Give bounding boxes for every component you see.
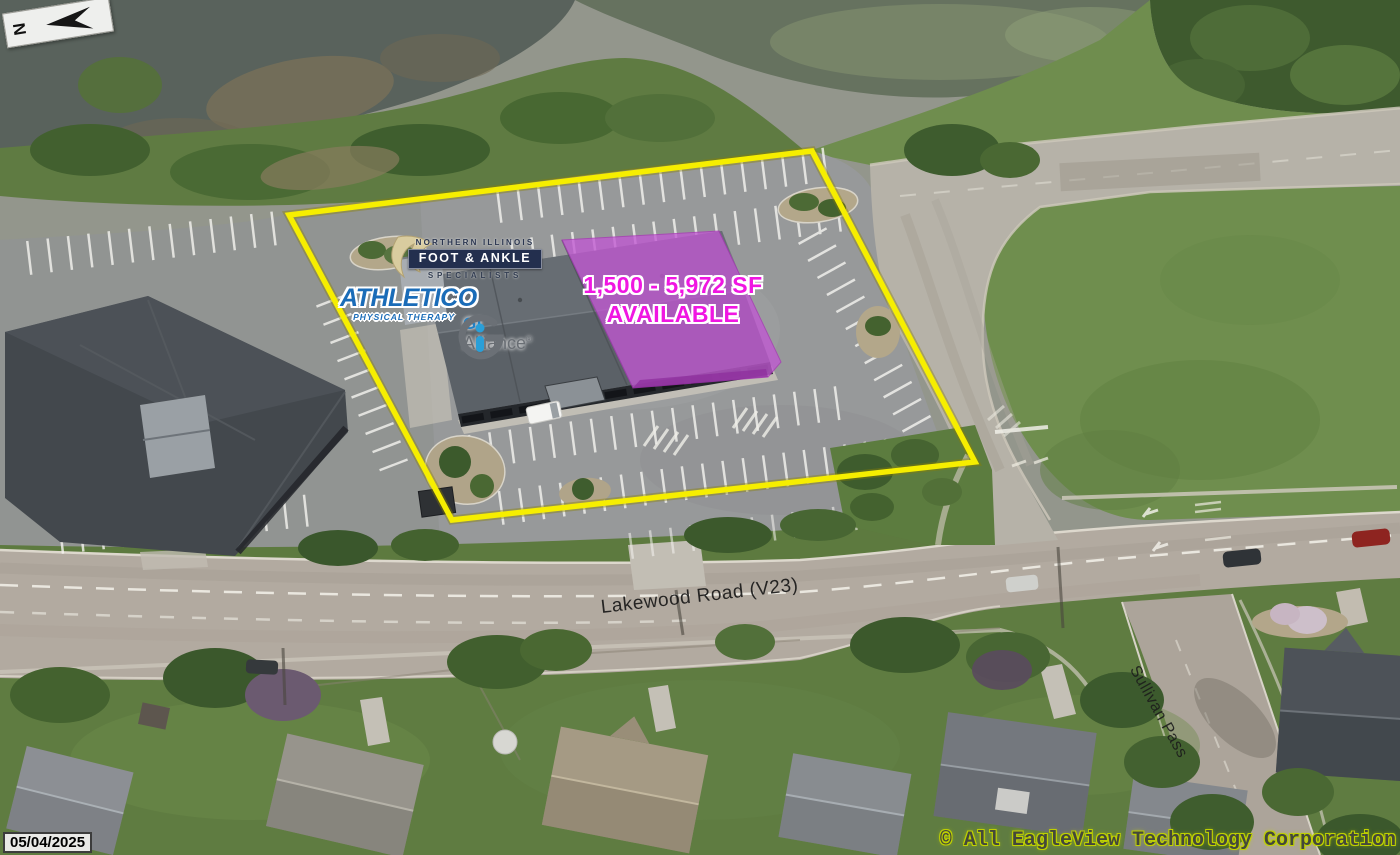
foot-ankle-top-text: NORTHERN ILLINOIS <box>408 239 542 247</box>
trampoline <box>493 730 517 754</box>
shrub <box>850 493 894 521</box>
date-stamp: 05/04/2025 <box>3 832 92 853</box>
flowering-tree <box>1270 603 1300 625</box>
copyright-notice: © All EagleView Technology Corporation <box>940 829 1396 852</box>
gi-alliance-mark-icon <box>458 315 504 361</box>
pole-shadow <box>283 648 285 705</box>
tree <box>1262 768 1334 816</box>
tree <box>439 446 471 478</box>
tree <box>470 474 494 498</box>
tree-cluster <box>500 92 620 144</box>
shrub <box>865 316 891 336</box>
tree <box>10 667 110 723</box>
tree <box>780 509 856 541</box>
availability-callout: 1,500 - 5,972 SF AVAILABLE <box>568 271 778 329</box>
dormer <box>995 788 1030 814</box>
tree <box>298 530 378 566</box>
north-arrow-icon <box>32 3 98 40</box>
availability-size-range: 1,500 - 5,972 SF <box>568 271 778 300</box>
tree-cluster <box>30 124 150 176</box>
tree <box>715 624 775 660</box>
tree-cluster <box>78 57 162 113</box>
house <box>933 712 1096 837</box>
athletico-logo: ATHLETICO PHYSICAL THERAPY <box>340 286 468 322</box>
marsh-patch <box>380 34 500 82</box>
foot-ankle-logo: NORTHERN ILLINOIS FOOT & ANKLE SPECIALIS… <box>408 239 542 280</box>
shrub <box>358 241 386 259</box>
gi-alliance-logo: GI Alliance® <box>458 315 532 352</box>
north-label: N <box>8 21 30 36</box>
car <box>246 659 279 675</box>
tree <box>391 529 459 561</box>
registered-mark: ® <box>526 335 532 344</box>
availability-status: AVAILABLE <box>568 300 778 329</box>
grass-patch <box>1160 235 1340 325</box>
tree-cluster <box>605 94 715 142</box>
east-field <box>983 186 1400 520</box>
aerial-map: N NORTHERN ILLINOIS FOOT & ANKLE SPECIAL… <box>0 0 1400 855</box>
tree <box>684 517 772 553</box>
athletico-subtitle: PHYSICAL THERAPY <box>340 313 468 322</box>
aerial-scene <box>0 0 1400 855</box>
shrub <box>789 193 819 211</box>
flowering-tree <box>972 650 1032 690</box>
foot-ankle-bottom-text: SPECIALISTS <box>408 272 542 280</box>
tree <box>520 629 592 671</box>
shrub <box>922 478 962 506</box>
tree <box>980 142 1040 178</box>
tree <box>1124 736 1200 788</box>
tree-cluster <box>1290 45 1400 105</box>
tree <box>572 478 594 500</box>
roof-vent <box>518 298 522 302</box>
entrance-canopy <box>140 395 215 478</box>
tree <box>850 617 960 673</box>
foot-ankle-name: FOOT & ANKLE <box>408 249 542 269</box>
athletico-name: ATHLETICO <box>340 286 468 311</box>
